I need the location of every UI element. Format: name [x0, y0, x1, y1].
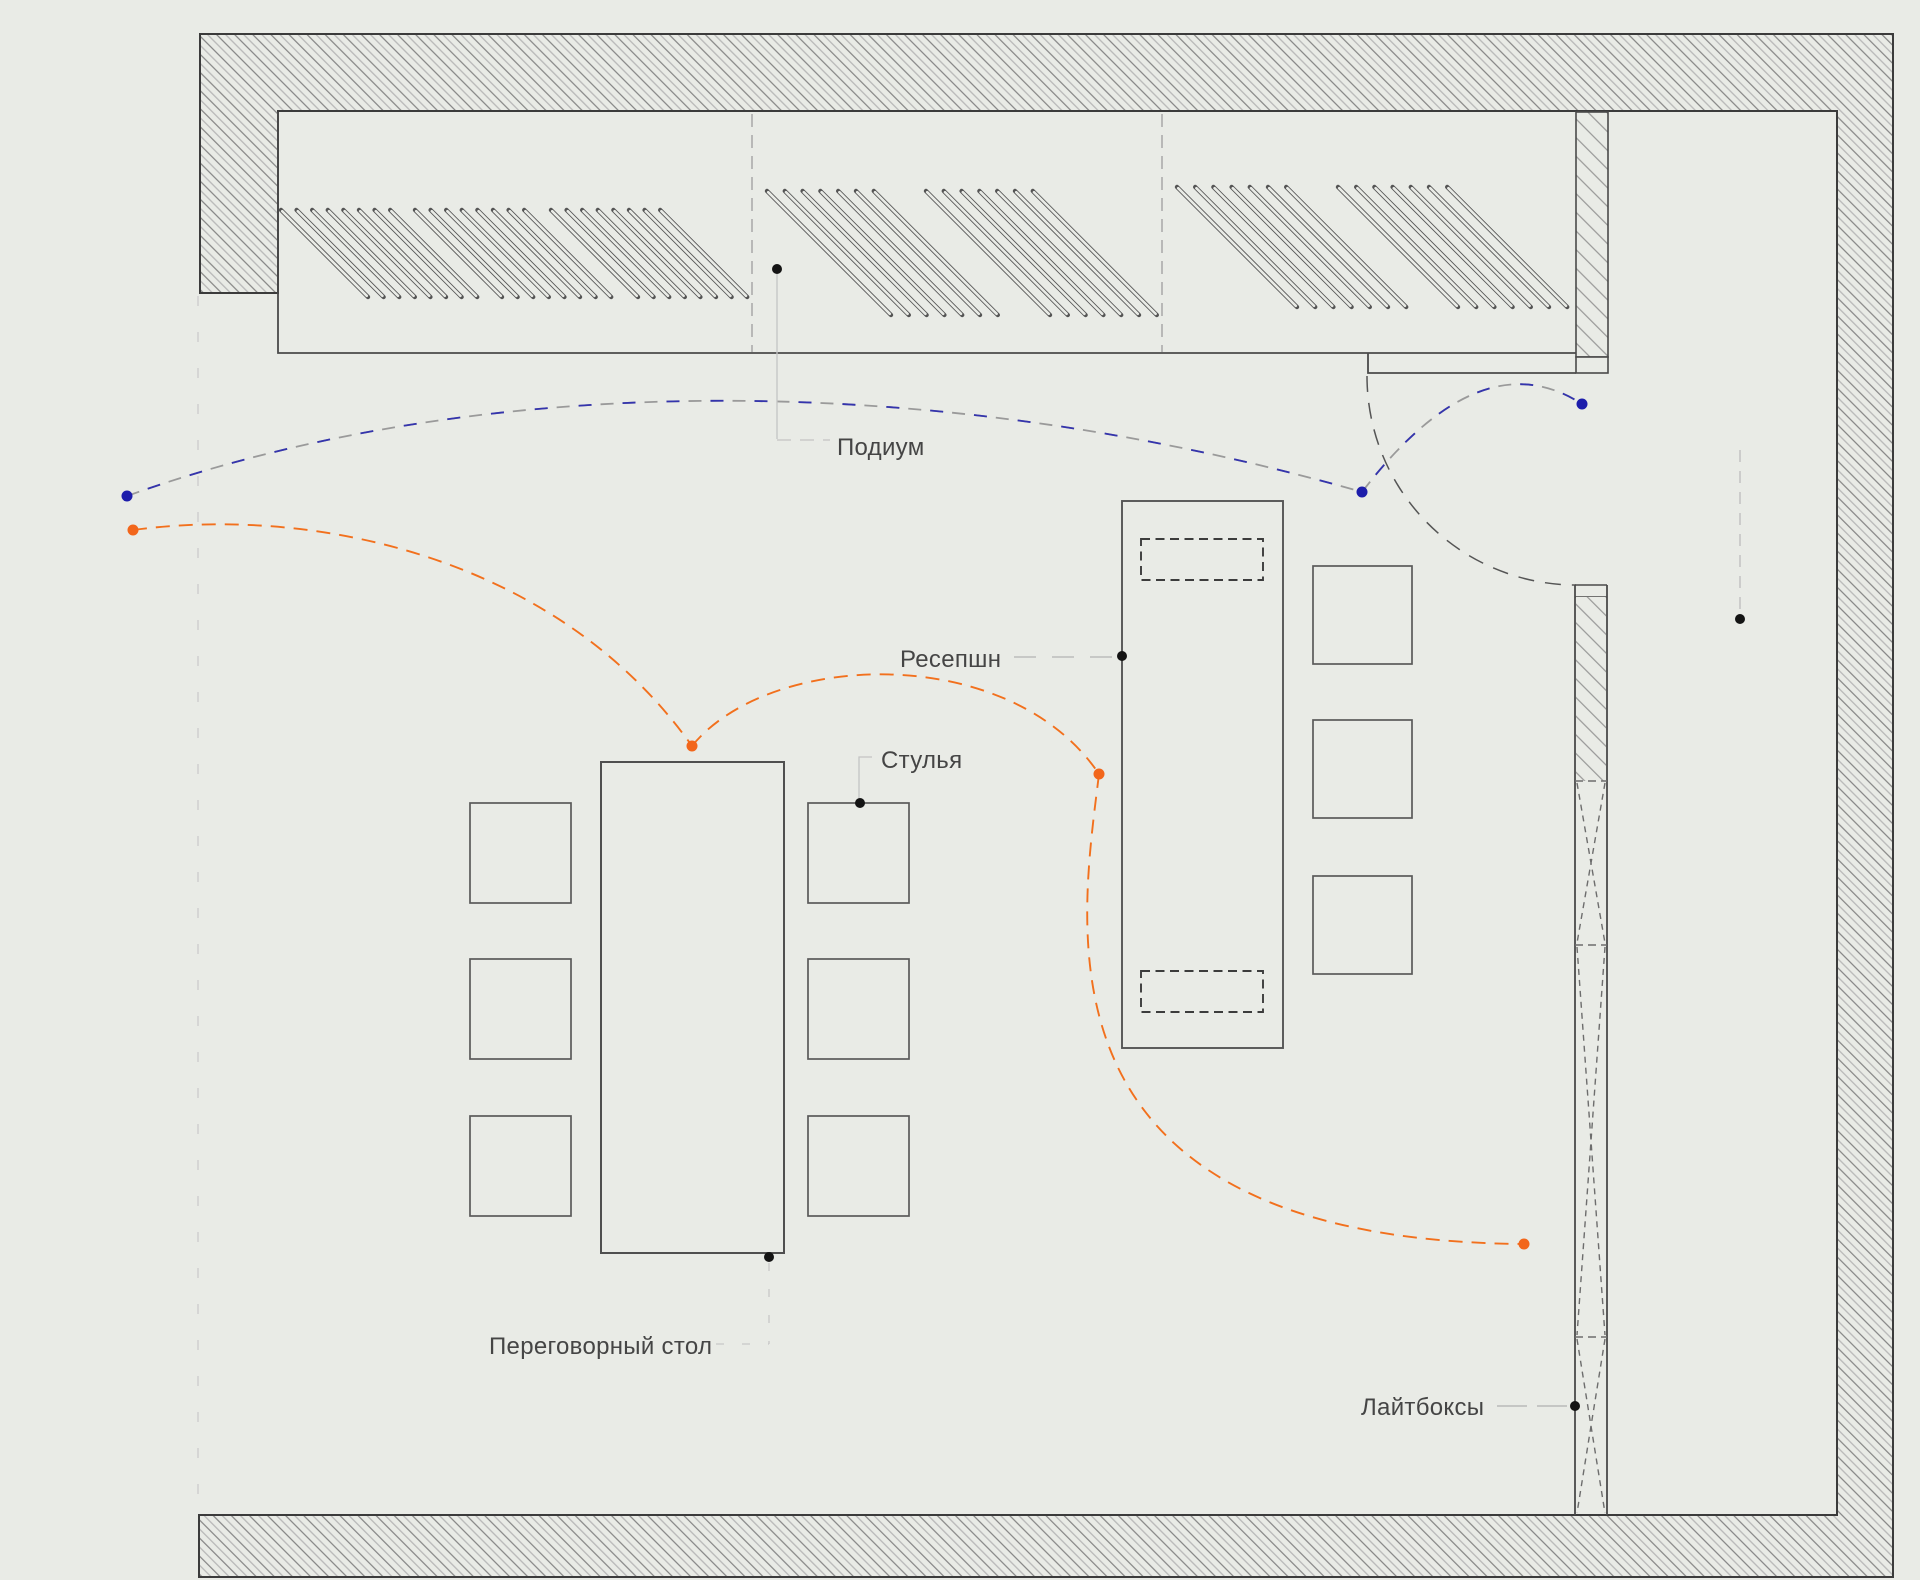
- svg-text:Переговорный стол: Переговорный стол: [489, 1333, 712, 1360]
- svg-text:Подиум: Подиум: [837, 434, 925, 461]
- svg-text:Ресепшн: Ресепшн: [900, 646, 1001, 673]
- svg-text:Стулья: Стулья: [881, 747, 962, 774]
- svg-text:Лайтбоксы: Лайтбоксы: [1361, 1394, 1484, 1421]
